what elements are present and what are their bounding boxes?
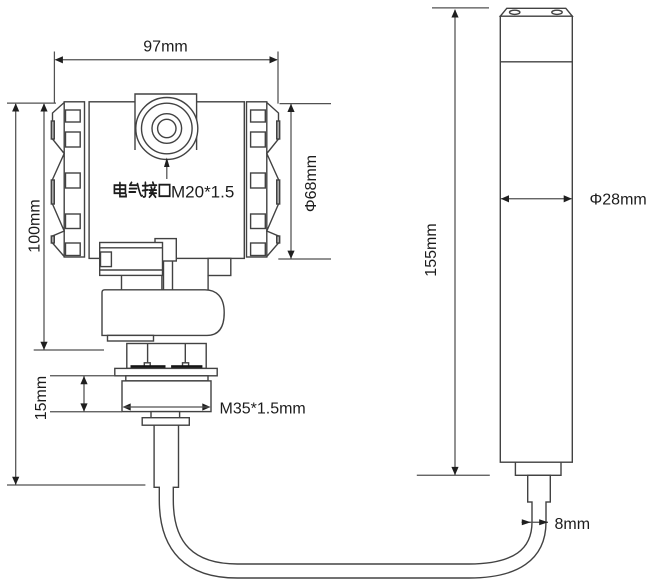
svg-text:100mm: 100mm — [27, 199, 44, 252]
svg-text:Φ28mm: Φ28mm — [590, 191, 647, 208]
svg-text:97mm: 97mm — [143, 38, 187, 55]
svg-text:M35*1.5mm: M35*1.5mm — [220, 401, 306, 418]
svg-text:155mm: 155mm — [423, 223, 440, 276]
svg-text:8mm: 8mm — [555, 516, 591, 533]
svg-text:Φ68mm: Φ68mm — [303, 155, 320, 212]
svg-text:15mm: 15mm — [33, 376, 50, 420]
svg-text:M20*1.5: M20*1.5 — [171, 183, 234, 202]
